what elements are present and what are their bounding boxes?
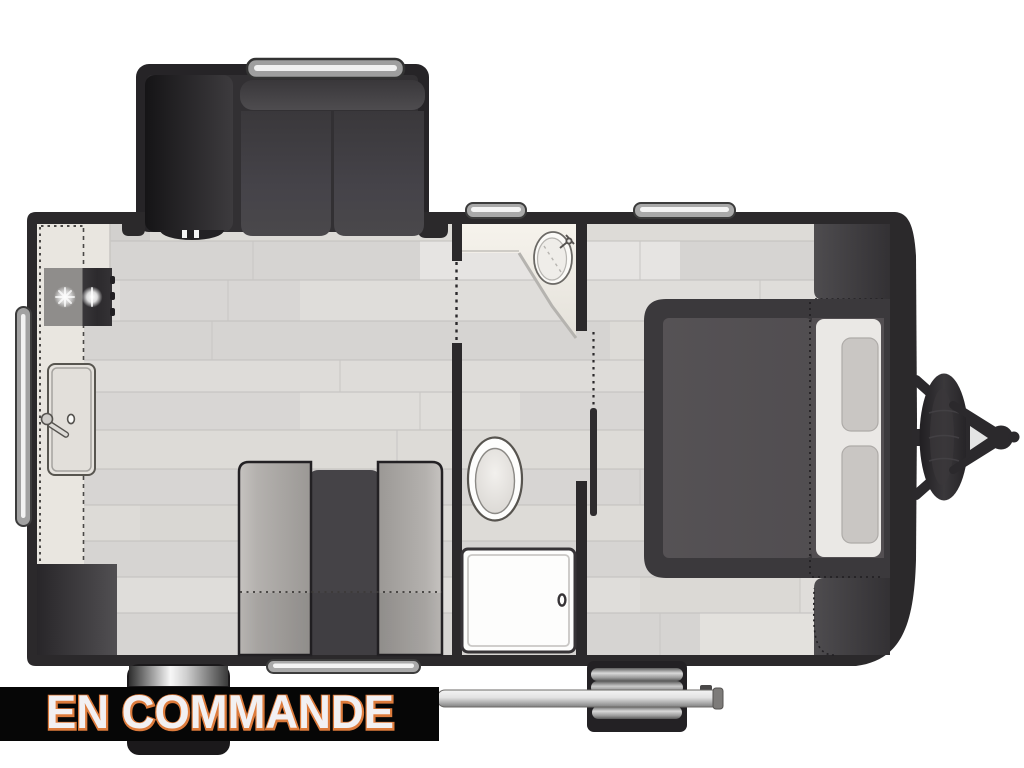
- svg-text:EN COMMANDE: EN COMMANDE: [46, 685, 394, 738]
